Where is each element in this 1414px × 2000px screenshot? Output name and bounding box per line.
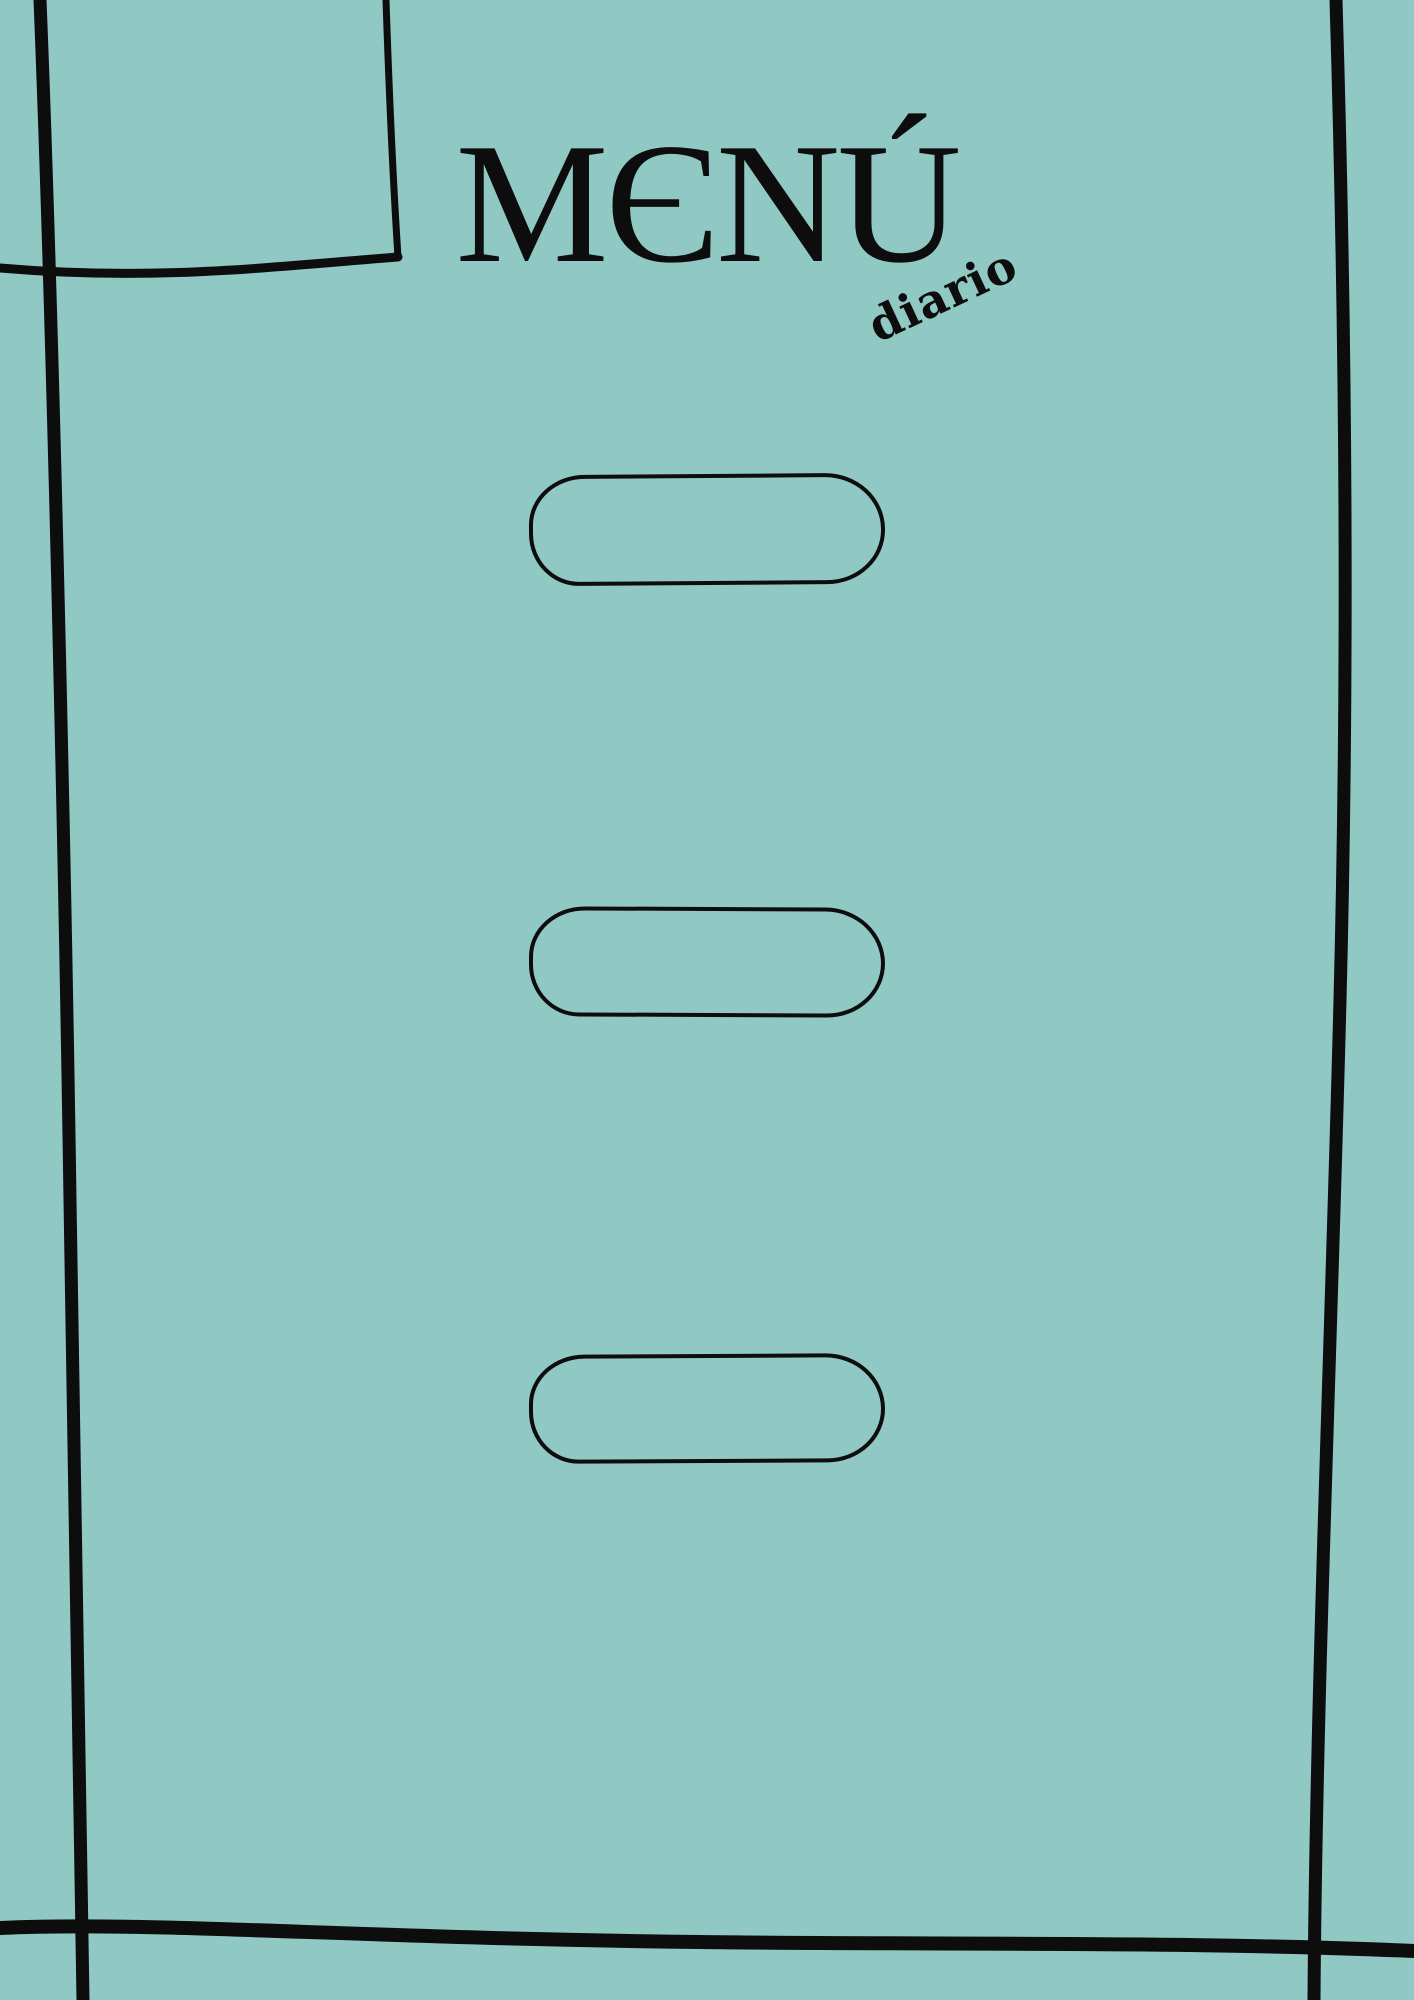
menu-poster-page: MЄNÚ diario	[0, 0, 1414, 2000]
left-border-line	[40, 0, 83, 2000]
menu-item-slot-1	[529, 473, 886, 586]
menu-item-slot-3	[529, 1353, 886, 1464]
right-border-line	[1314, 0, 1345, 2000]
page-title: MЄNÚ	[0, 118, 1414, 290]
menu-item-slot-2	[529, 906, 885, 1018]
bottom-border-line	[0, 1926, 1414, 1951]
